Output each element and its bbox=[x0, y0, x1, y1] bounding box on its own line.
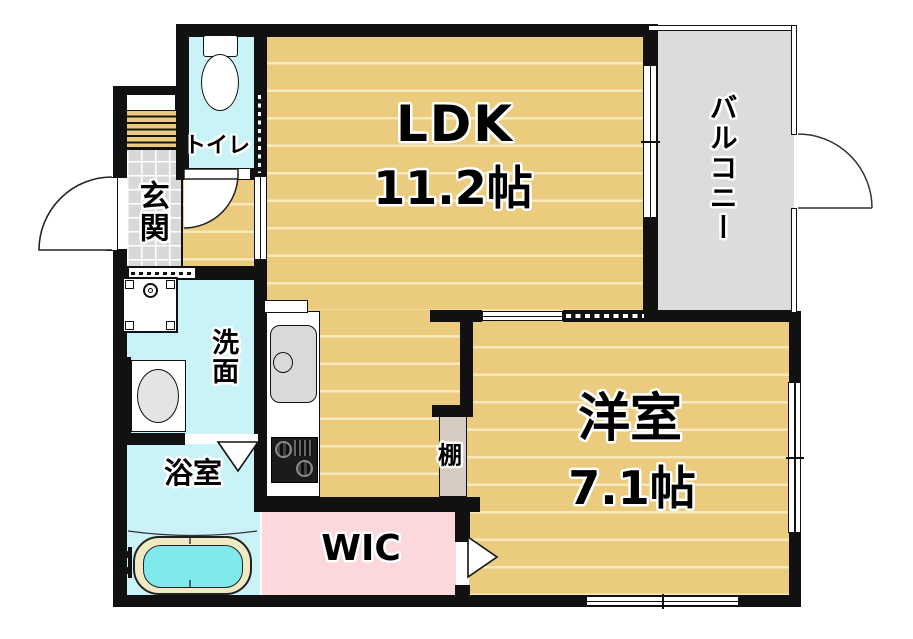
entrance-step-line bbox=[181, 178, 183, 268]
wall bbox=[430, 310, 482, 322]
wall bbox=[647, 310, 793, 322]
entrance-stairs bbox=[127, 111, 176, 149]
slider-track-dash bbox=[566, 314, 644, 318]
entrance-label: 玄関 bbox=[134, 180, 168, 244]
vanity-basin bbox=[137, 369, 179, 423]
toilet-label: トイレ bbox=[184, 135, 250, 160]
western-room-sliding-door bbox=[482, 311, 563, 321]
toilet-bowl bbox=[201, 54, 239, 111]
wall bbox=[176, 24, 650, 37]
ldk-size-label: 11.2帖 bbox=[373, 163, 533, 215]
vent-dash-line bbox=[258, 95, 261, 173]
pipe-space bbox=[113, 357, 131, 435]
floor-plan: LDK 11.2帖 洋室 7.1帖 バルコニー トイレ 玄関 洗面 浴室 WIC… bbox=[0, 0, 913, 639]
bathroom-doorway bbox=[185, 434, 258, 444]
wall bbox=[254, 497, 480, 512]
wall bbox=[113, 433, 185, 445]
kitchen-faucet bbox=[273, 352, 293, 373]
wic-opening bbox=[456, 542, 469, 585]
wall bbox=[113, 86, 127, 178]
toilet-doorway bbox=[189, 169, 250, 179]
wall bbox=[455, 585, 470, 597]
shelf-label: 棚 bbox=[438, 443, 462, 470]
hall-ldk-sliding-door bbox=[254, 176, 267, 260]
kitchen-stove bbox=[271, 437, 318, 483]
wic-label: WIC bbox=[321, 529, 401, 569]
balcony-railing-top bbox=[648, 25, 796, 31]
western-room-bottom-window bbox=[586, 596, 739, 606]
balcony-railing-right bbox=[791, 208, 797, 313]
bathtub-water bbox=[143, 545, 243, 588]
western-room-floor bbox=[460, 321, 789, 597]
balcony-railing-right bbox=[791, 25, 797, 135]
balcony-label: バルコニー bbox=[706, 93, 737, 243]
ldk-balcony-window bbox=[643, 65, 657, 218]
ldk-label: LDK bbox=[396, 96, 514, 152]
front-door bbox=[106, 177, 118, 251]
kitchen-hood bbox=[264, 300, 308, 313]
wall bbox=[460, 316, 473, 409]
washer-pan bbox=[122, 277, 178, 333]
washroom-label: 洗面 bbox=[207, 328, 237, 386]
western-room-side-window bbox=[788, 382, 801, 533]
western-room-size-label: 7.1帖 bbox=[568, 463, 696, 515]
wall bbox=[455, 512, 470, 542]
stairs-edge-line bbox=[121, 147, 178, 150]
wall bbox=[432, 405, 473, 417]
western-room-label: 洋室 bbox=[578, 390, 682, 448]
hallway-floor bbox=[181, 178, 255, 270]
bathroom-label: 浴室 bbox=[164, 457, 222, 489]
washer-drain bbox=[143, 283, 158, 298]
